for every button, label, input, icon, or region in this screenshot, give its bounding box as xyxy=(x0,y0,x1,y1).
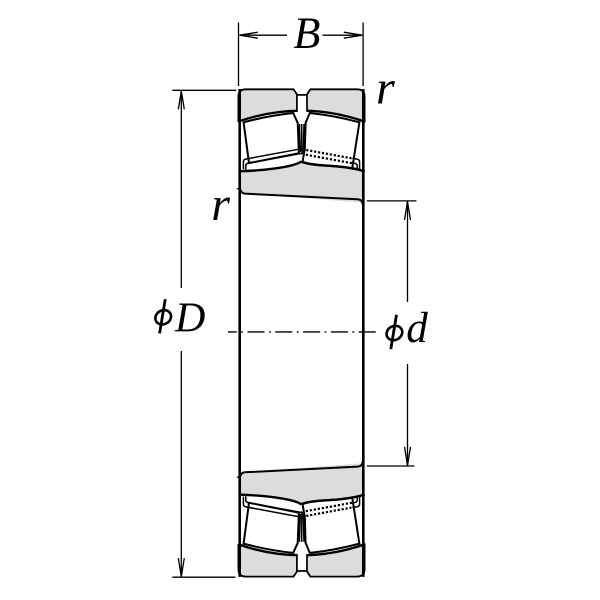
svg-text:r: r xyxy=(211,178,230,231)
svg-text:B: B xyxy=(294,9,321,58)
svg-text:r: r xyxy=(376,62,395,115)
svg-text:D: D xyxy=(174,296,205,342)
svg-text:d: d xyxy=(406,305,428,352)
